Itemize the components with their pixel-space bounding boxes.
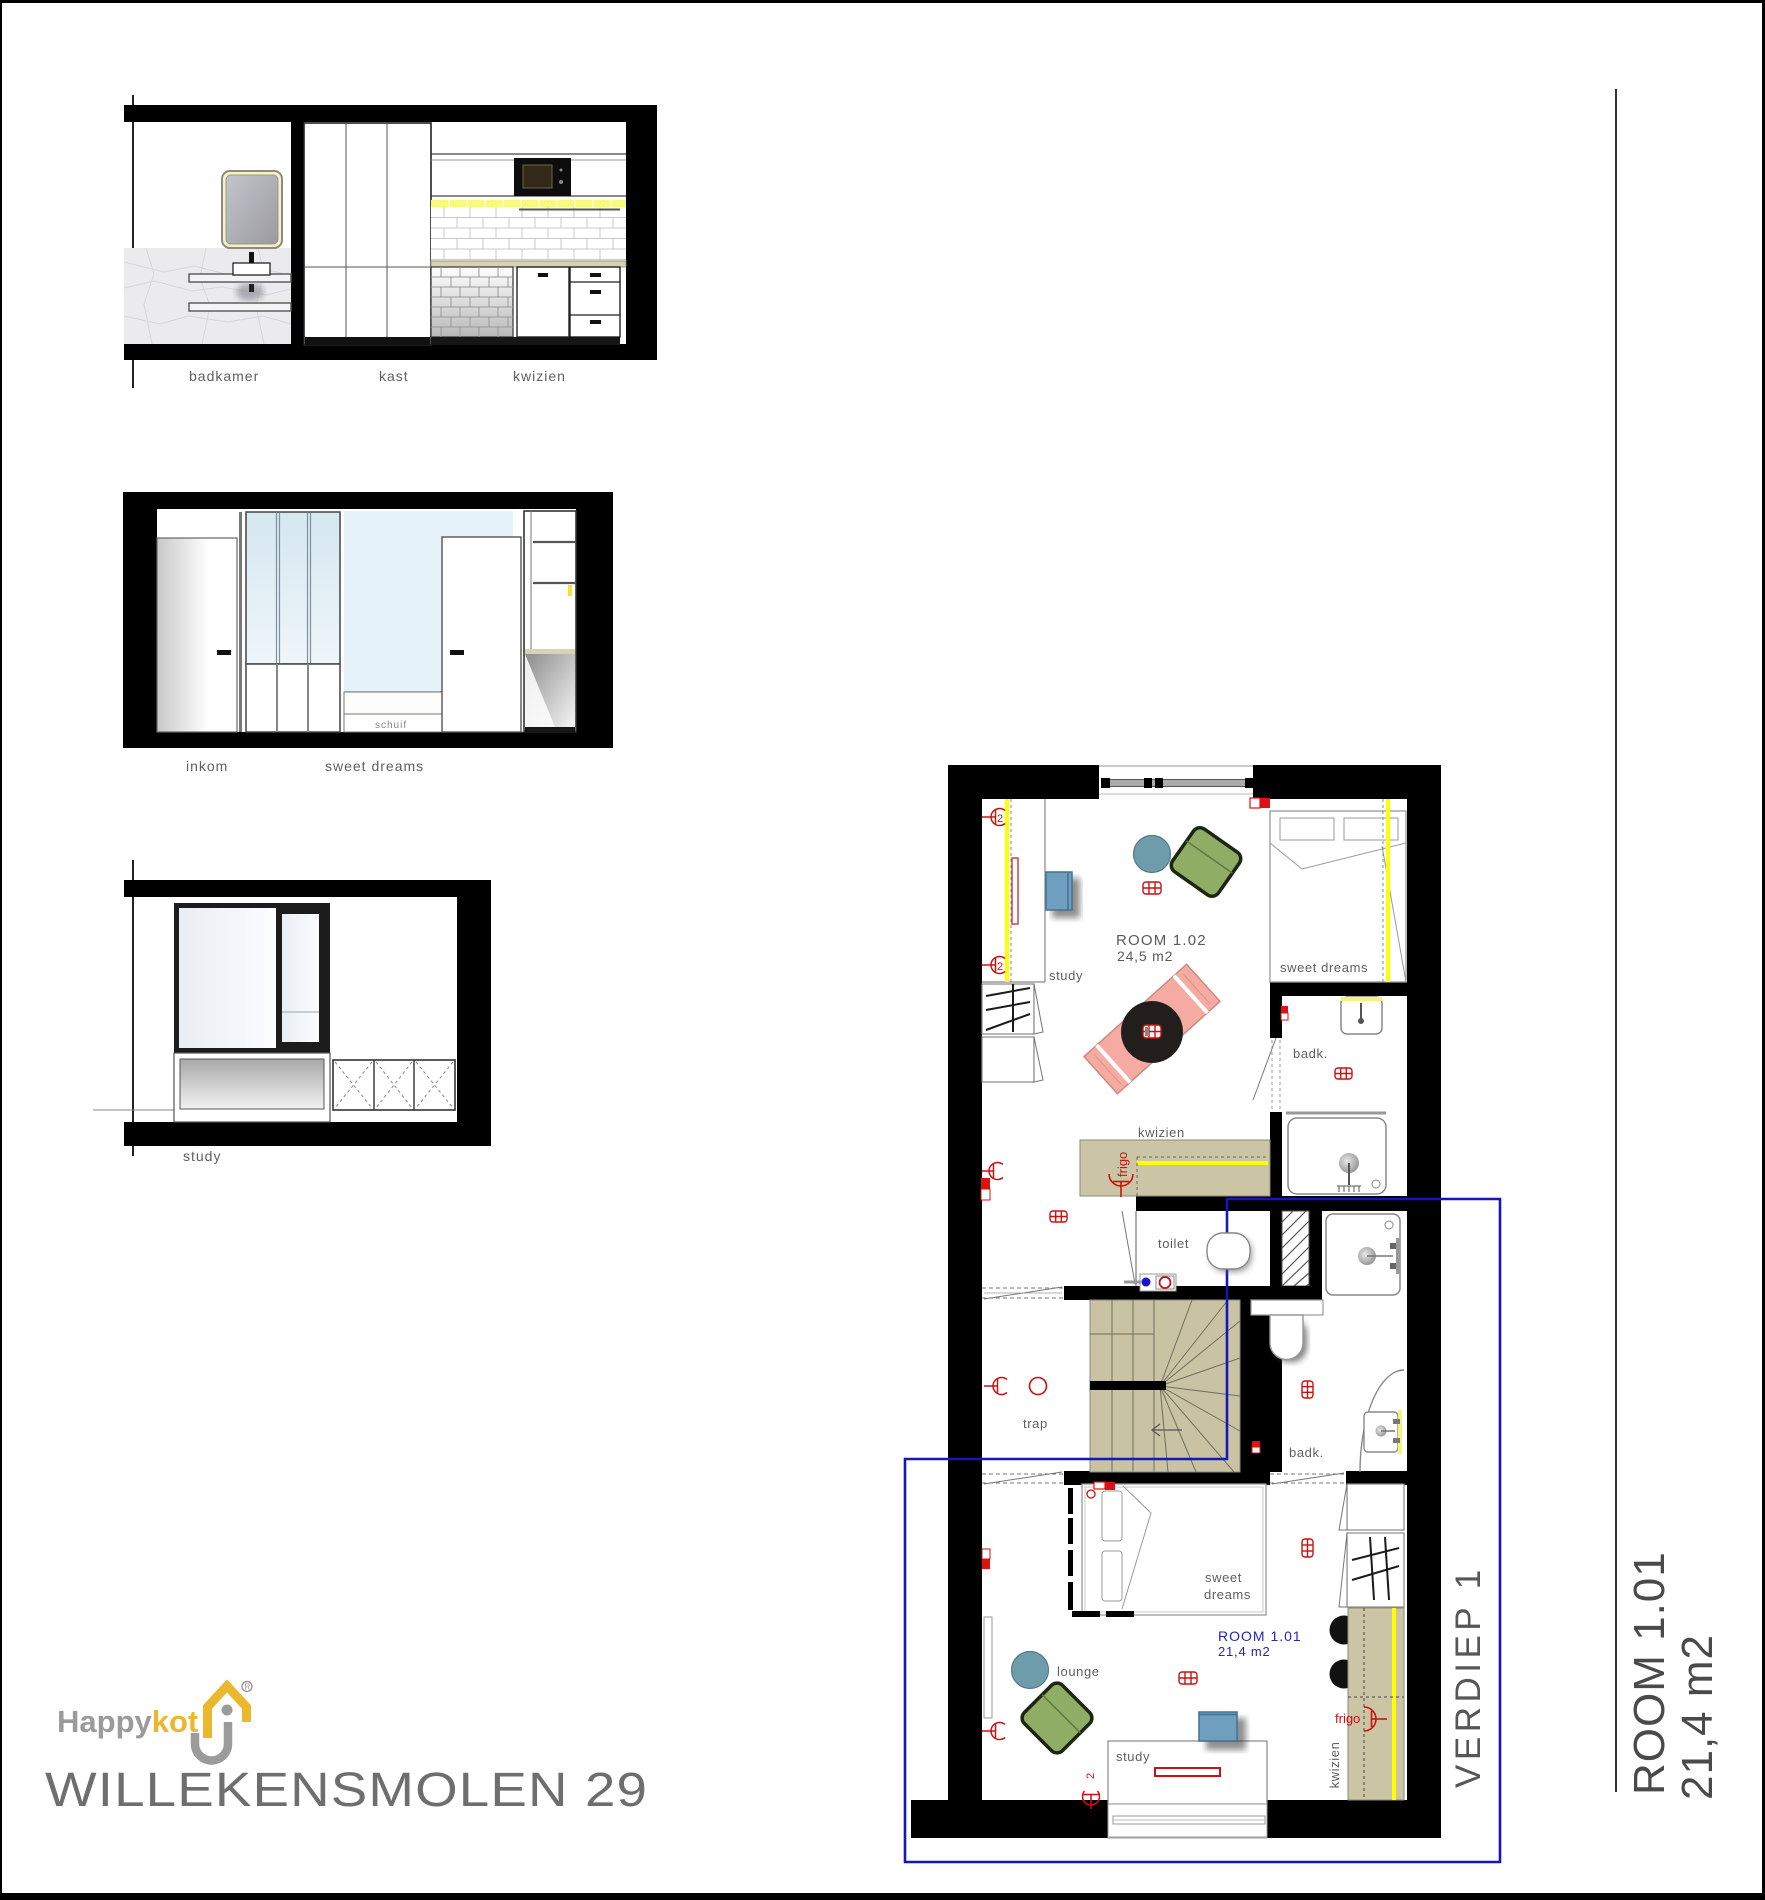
- svg-text:toilet: toilet: [1158, 1236, 1189, 1251]
- svg-text:study: study: [1116, 1749, 1150, 1764]
- svg-text:R: R: [245, 1683, 251, 1692]
- svg-text:study: study: [1049, 968, 1083, 983]
- svg-text:kwizien: kwizien: [1138, 1125, 1185, 1140]
- svg-text:trap: trap: [1023, 1416, 1048, 1431]
- svg-text:24,5 m2: 24,5 m2: [1117, 948, 1173, 964]
- svg-text:kwizien: kwizien: [513, 368, 566, 384]
- svg-text:study: study: [183, 1148, 221, 1164]
- svg-text:kast: kast: [379, 368, 409, 384]
- svg-text:WILLEKENSMOLEN 29: WILLEKENSMOLEN 29: [45, 1762, 648, 1816]
- svg-text:badk.: badk.: [1289, 1445, 1324, 1460]
- svg-text:badk.: badk.: [1293, 1046, 1328, 1061]
- svg-text:inkom: inkom: [186, 758, 228, 774]
- svg-text:dreams: dreams: [1204, 1587, 1251, 1602]
- svg-text:frigo: frigo: [1115, 1152, 1130, 1177]
- svg-text:21,4 m2: 21,4 m2: [1218, 1644, 1271, 1659]
- svg-text:VERDIEP 1: VERDIEP 1: [1449, 1565, 1488, 1788]
- svg-text:ROOM 1.02: ROOM 1.02: [1116, 932, 1207, 949]
- svg-text:2: 2: [1085, 1773, 1097, 1779]
- svg-text:sweet: sweet: [1205, 1570, 1242, 1585]
- svg-text:sweet dreams: sweet dreams: [325, 758, 424, 774]
- svg-text:sweet dreams: sweet dreams: [1280, 960, 1368, 975]
- svg-text:ROOM 1.01: ROOM 1.01: [1218, 1628, 1302, 1644]
- svg-text:2: 2: [997, 813, 1003, 825]
- svg-text:ROOM 1.01: ROOM 1.01: [1625, 1551, 1674, 1795]
- svg-text:21,4 m2: 21,4 m2: [1673, 1634, 1722, 1800]
- svg-text:kwizien: kwizien: [1327, 1742, 1342, 1789]
- svg-text:badkamer: badkamer: [189, 368, 259, 384]
- svg-text:schuif: schuif: [375, 720, 407, 731]
- svg-text:2: 2: [997, 961, 1003, 973]
- svg-text:lounge: lounge: [1057, 1664, 1100, 1679]
- svg-text:frigo: frigo: [1335, 1711, 1360, 1726]
- svg-text:Happykot: Happykot: [57, 1704, 198, 1739]
